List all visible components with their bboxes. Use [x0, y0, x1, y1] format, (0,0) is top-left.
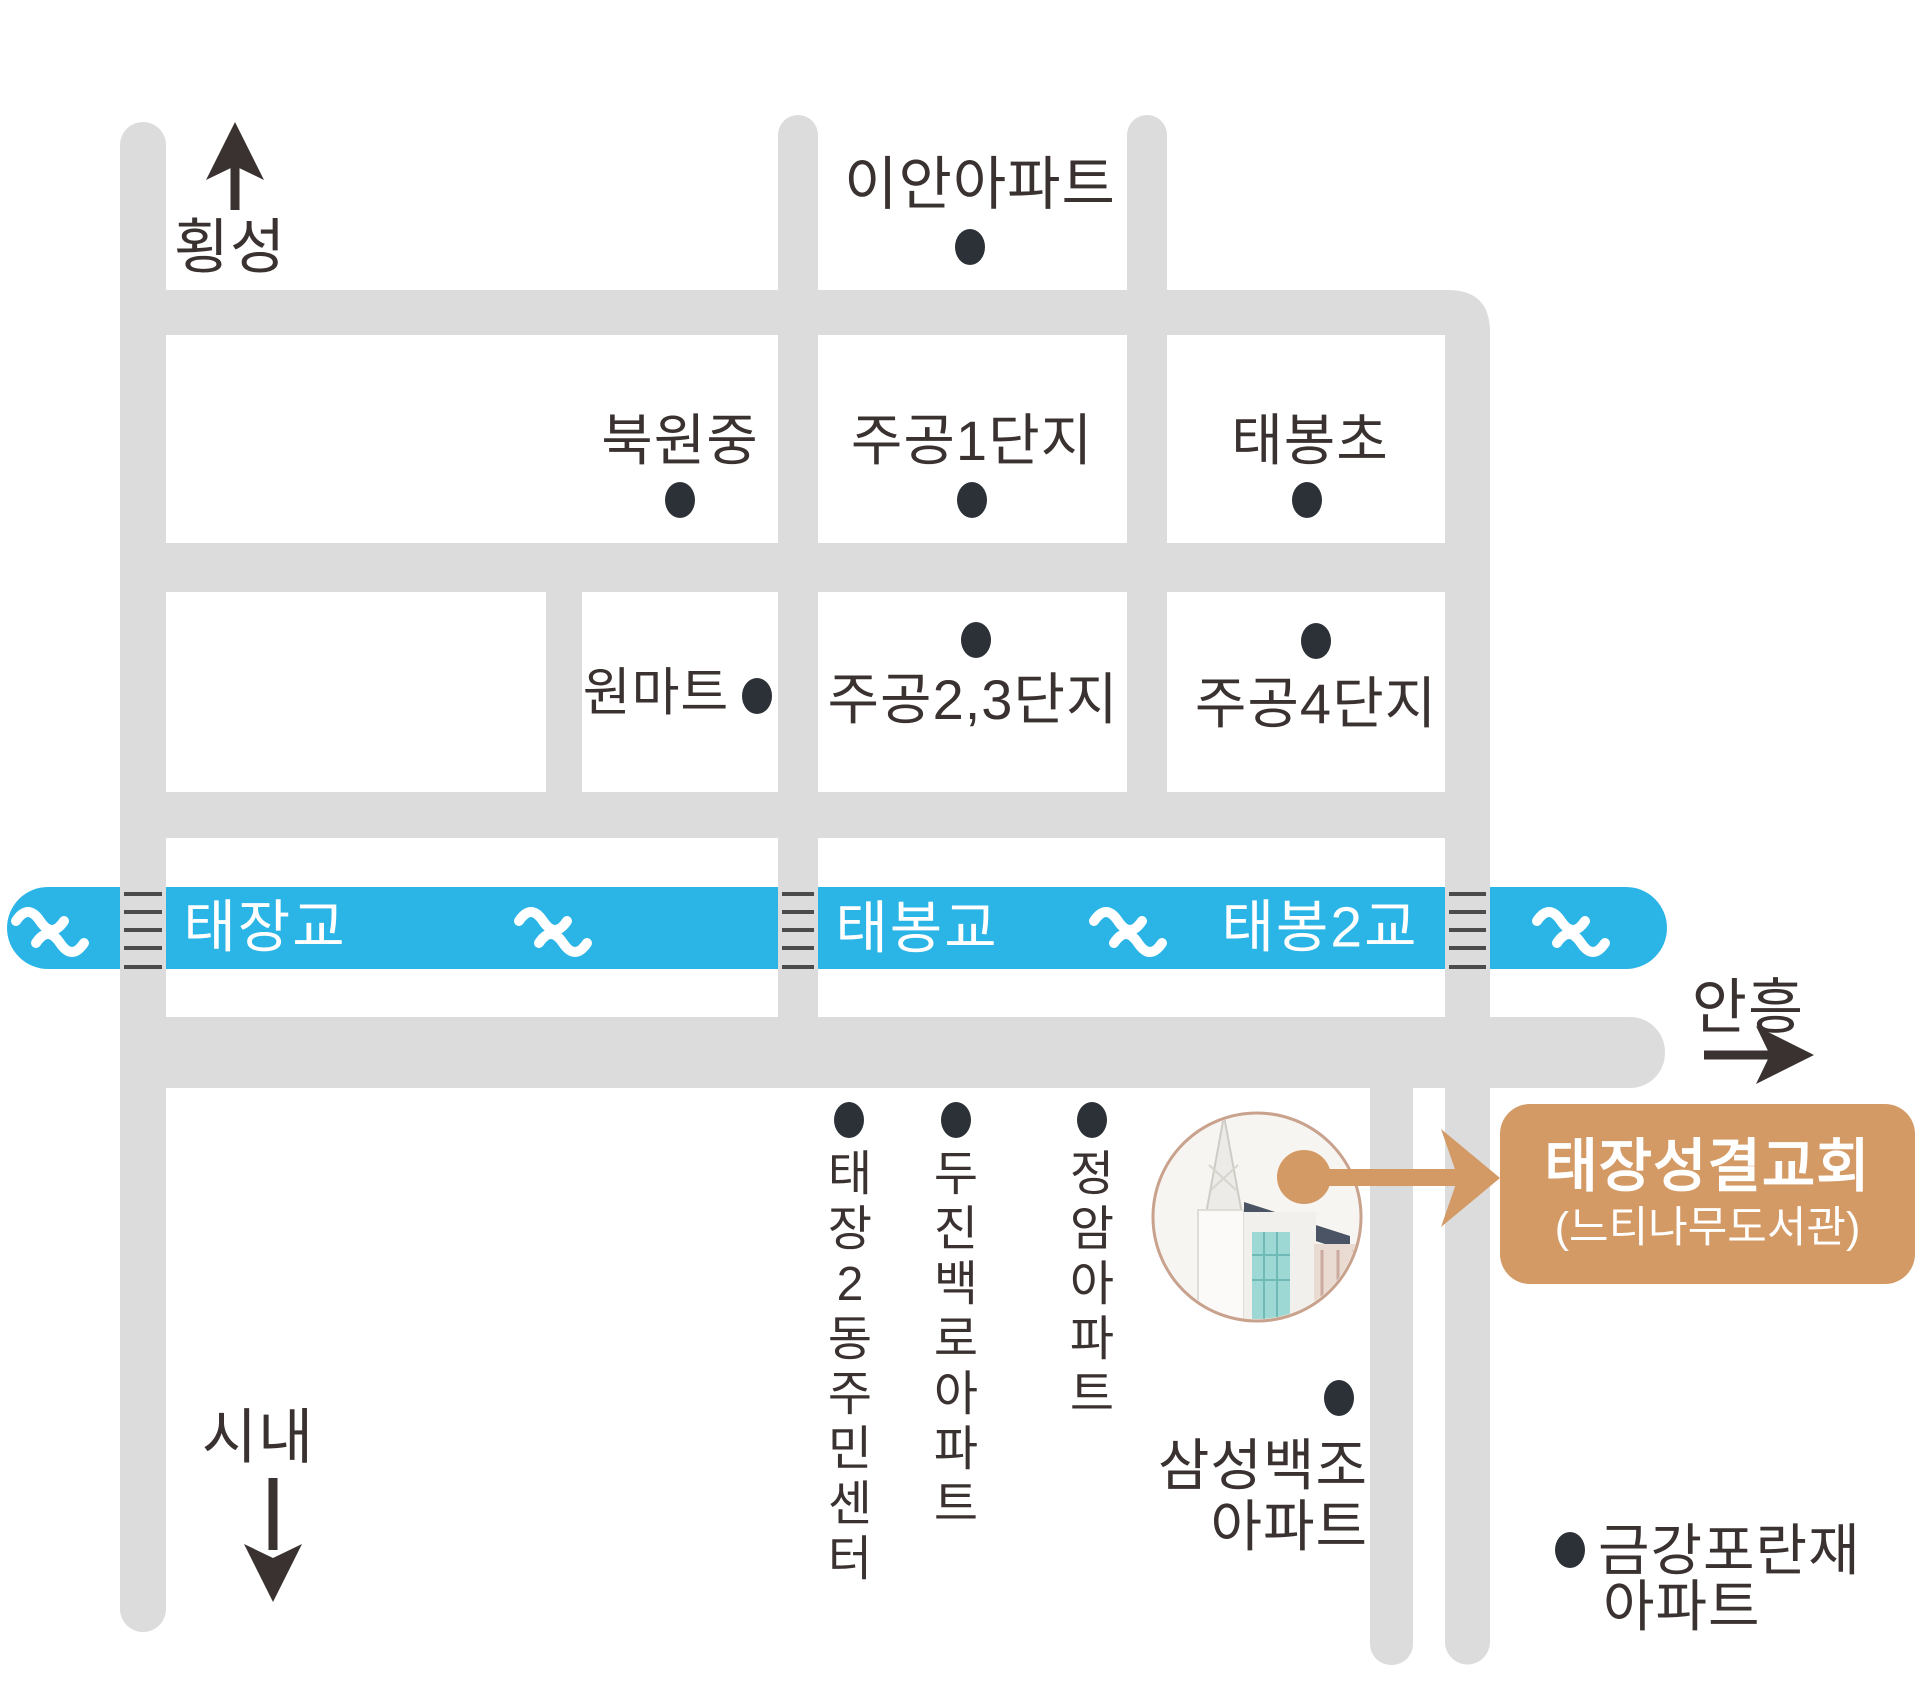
label-jugong-1danji: 주공1단지: [851, 410, 1093, 472]
label-samsung-baekjo-line2: 아파트: [1210, 1496, 1368, 1558]
poi-dot-jeongam-apartment: [1077, 1102, 1107, 1138]
poi-dot-jugong-23danji: [961, 622, 991, 658]
road-vertical-short: [546, 543, 582, 838]
poi-dot-geumgang-poranjae-apartment: [1555, 1532, 1585, 1568]
label-won-mart: 원마트: [583, 665, 730, 722]
road-left-vertical: [120, 122, 166, 1632]
poi-dot-dujin-baekro-apartment: [941, 1102, 971, 1138]
label-jugong-23danji: 주공2,3단지: [828, 669, 1119, 731]
church-photo: [1153, 1098, 1364, 1322]
south-arrow-icon: [244, 1478, 302, 1602]
location-map: 횡성 시내 안흥 이안아파트 북원중 주공1단지 태봉초 원마트 주공2,3단지…: [0, 0, 1920, 1697]
label-taebong-bridge: 태봉교: [835, 898, 998, 961]
poi-dot-bukwon-middle-school: [665, 482, 695, 518]
direction-south-label: 시내: [202, 1405, 314, 1471]
poi-dot-taebong-elementary: [1292, 482, 1322, 518]
direction-north-label: 횡성: [174, 215, 286, 281]
label-taebong-elementary: 태봉초: [1231, 410, 1389, 472]
label-geumgang-poranjae-line1: 금강포란재: [1598, 1520, 1861, 1582]
north-arrow-icon: [206, 122, 264, 210]
poi-dot-won-mart: [742, 678, 772, 714]
poi-dot-ian-apartment: [955, 229, 985, 265]
road-vertical-bottom-right: [1370, 1017, 1413, 1665]
label-jeongam-apartment: 정암아파트: [1065, 1147, 1119, 1422]
label-jugong-4danji: 주공4단지: [1195, 673, 1437, 735]
label-taejang-bridge: 태장교: [183, 897, 346, 960]
direction-east-label: 안흥: [1692, 975, 1804, 1041]
poi-dot-jugong-1danji: [957, 482, 987, 518]
destination-subtitle: (느티나무도서관): [1555, 1205, 1861, 1252]
label-geumgang-poranjae-line2: 아파트: [1603, 1576, 1761, 1638]
road-vertical-taebonggyo: [778, 115, 818, 1088]
label-ian-apartment: 이안아파트: [844, 153, 1116, 217]
label-bukwon-middle-school: 북원중: [601, 410, 759, 472]
label-samsung-baekjo-line1: 삼성백조: [1158, 1435, 1368, 1497]
poi-dot-jugong-4danji: [1301, 623, 1331, 659]
label-taebong2-bridge: 태봉2교: [1221, 897, 1418, 960]
destination-name: 태장성결교회: [1544, 1135, 1870, 1199]
destination-callout: 태장성결교회 (느티나무도서관): [1500, 1104, 1915, 1284]
poi-dot-taejang2dong-community-center: [834, 1102, 864, 1138]
label-taejang2dong-community-center: 태장2동주민센터: [823, 1147, 877, 1587]
poi-dot-samsung-baekjo-apartment: [1324, 1380, 1354, 1416]
road-main-horizontal: [120, 1017, 1665, 1088]
road-vertical-center: [1127, 115, 1167, 838]
label-dujin-baekro-apartment: 두진백로아파트: [929, 1147, 983, 1532]
